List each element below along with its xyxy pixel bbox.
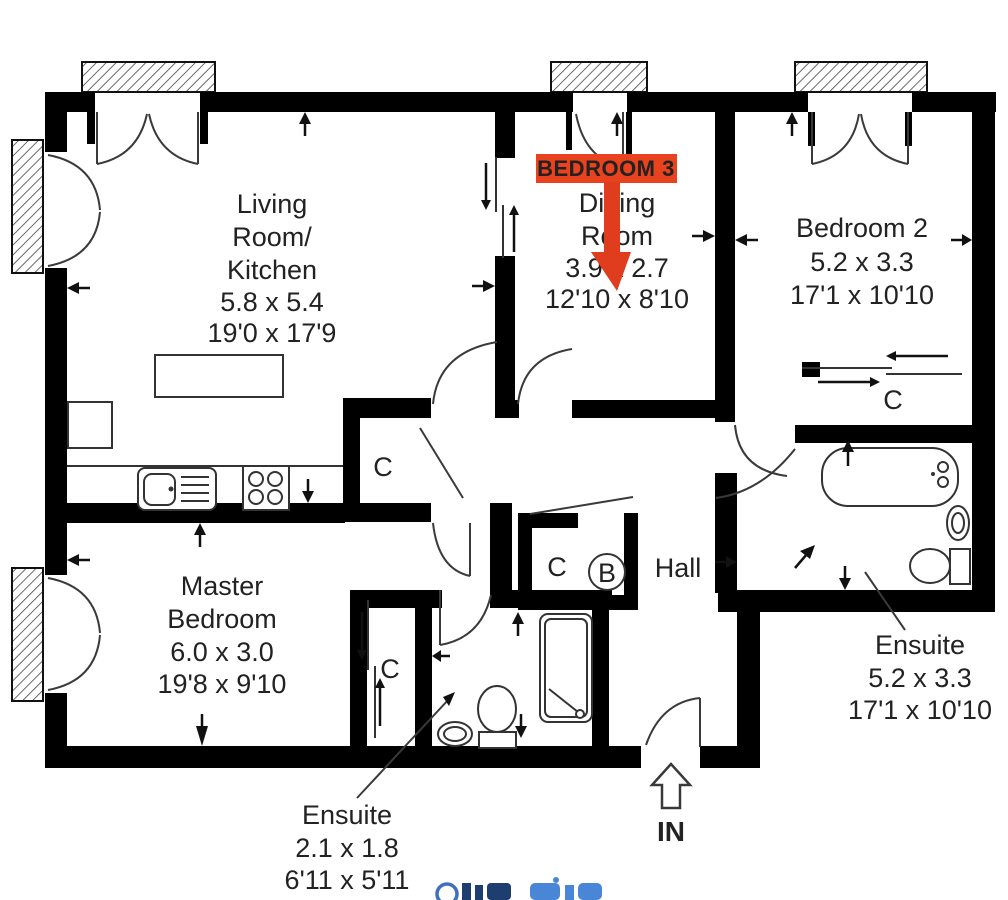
bedroom2-label: Bedroom 2: [796, 213, 928, 243]
ensuite-upper-label: Ensuite: [875, 630, 965, 660]
bedroom3-arrow-shaft: [604, 182, 620, 254]
living-room-imperial: 19'0 x 17'9: [208, 318, 337, 348]
ensuite-master-imperial: 6'11 x 5'11: [285, 865, 410, 895]
ensuite-upper-metric: 5.2 x 3.3: [868, 663, 972, 693]
basin-icon: [438, 722, 472, 746]
living-room-metric: 5.8 x 5.4: [220, 287, 324, 317]
cupboard-marker: C: [380, 654, 400, 684]
floor-plan: Living Room/ Kitchen 5.8 x 5.4 19'0 x 17…: [0, 0, 1008, 900]
basin-icon: [947, 506, 969, 540]
bedroom2-imperial: 17'1 x 10'10: [790, 280, 934, 310]
ensuite-upper-imperial: 17'1 x 10'10: [848, 695, 992, 725]
toilet-icon: [478, 686, 516, 748]
cupboard-marker: C: [883, 385, 903, 415]
cupboard-marker: C: [547, 552, 567, 582]
bath-icon: [822, 448, 958, 506]
entrance-label: IN: [657, 816, 685, 847]
living-room-label: Living: [237, 189, 308, 219]
shower-icon: [540, 614, 592, 722]
bedroom2-metric: 5.2 x 3.3: [810, 247, 914, 277]
kitchen-sink-icon: [138, 468, 216, 510]
floor-plan-page: Living Room/ Kitchen 5.8 x 5.4 19'0 x 17…: [0, 0, 1008, 900]
hob-icon: [243, 466, 289, 510]
kitchen-counter-icon: [67, 355, 343, 466]
ensuite-master-label: Ensuite: [302, 800, 392, 830]
living-room-label: Room/: [232, 222, 312, 252]
entrance: IN: [652, 764, 690, 847]
bedroom3-highlight-label: BEDROOM 3: [537, 156, 675, 181]
ensuite-master-metric: 2.1 x 1.8: [295, 833, 399, 863]
hall-label: Hall: [655, 553, 702, 583]
toilet-icon: [910, 549, 970, 584]
boiler-marker: B: [598, 558, 616, 588]
entrance-arrow-icon: [652, 764, 690, 808]
footer-logo-partial: [437, 877, 602, 900]
master-bedroom-label: Bedroom: [167, 604, 277, 634]
master-bedroom-label: Master: [181, 571, 264, 601]
master-bedroom-metric: 6.0 x 3.0: [170, 637, 274, 667]
cupboard-marker: C: [373, 452, 393, 482]
living-room-label: Kitchen: [227, 255, 317, 285]
master-bedroom-imperial: 19'8 x 9'10: [158, 669, 287, 699]
